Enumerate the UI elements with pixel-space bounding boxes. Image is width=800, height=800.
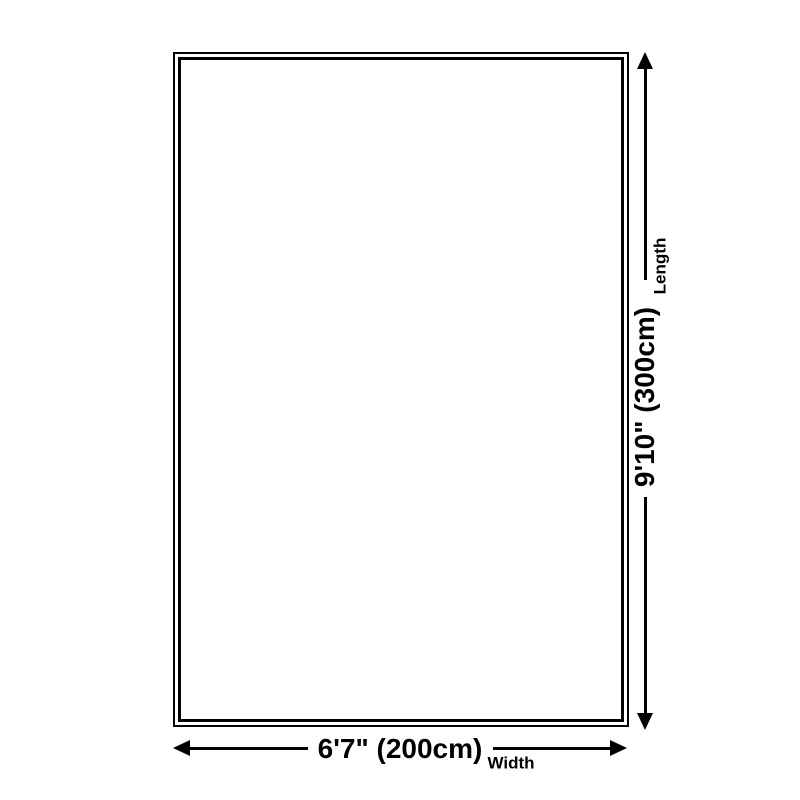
width-line-right-segment xyxy=(493,747,610,750)
width-value: 6'7" (200cm) xyxy=(318,735,483,763)
length-value: 9'10" (300cm) xyxy=(631,307,659,487)
length-line-top-segment xyxy=(644,66,647,280)
width-label: Width xyxy=(487,755,534,772)
arrow-left-icon xyxy=(173,740,190,756)
length-line-bottom-segment xyxy=(644,497,647,714)
rug-dimension-diagram: Length 9'10" (300cm) 6'7" (200cm) Width xyxy=(0,0,800,800)
arrow-down-icon xyxy=(637,713,653,730)
arrow-right-icon xyxy=(610,740,627,756)
rug-inner-border xyxy=(178,57,624,722)
length-label: Length xyxy=(652,238,669,295)
rug-outline xyxy=(173,52,629,727)
width-line-left-segment xyxy=(189,747,308,750)
